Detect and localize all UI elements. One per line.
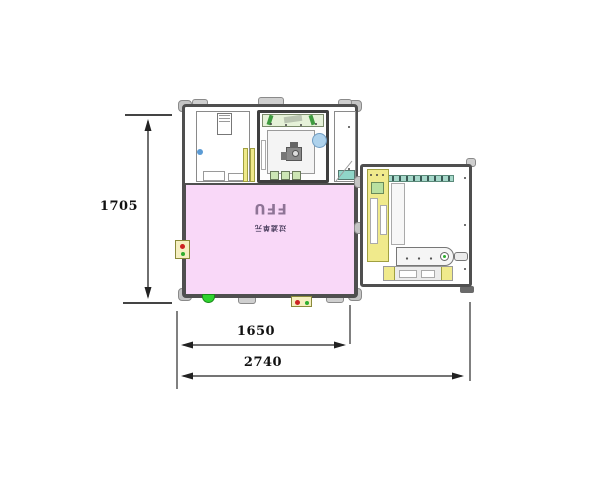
equipment-layout-drawing: FFU 过滤单元 bbox=[0, 0, 600, 500]
dim-label-inner-width: 1650 bbox=[230, 324, 282, 339]
arrowhead-icon bbox=[145, 287, 152, 299]
door-swing-line bbox=[336, 161, 352, 181]
arrowhead-icon bbox=[181, 342, 193, 349]
dim-label-total-width: 2740 bbox=[237, 355, 289, 370]
dim-label-height: 1705 bbox=[94, 199, 144, 214]
arrowhead-icon bbox=[334, 342, 346, 349]
arrowhead-icon bbox=[145, 119, 152, 131]
arrowhead-icon bbox=[452, 373, 464, 380]
dimension-lines-layer bbox=[0, 0, 600, 500]
arrowhead-icon bbox=[181, 373, 193, 380]
